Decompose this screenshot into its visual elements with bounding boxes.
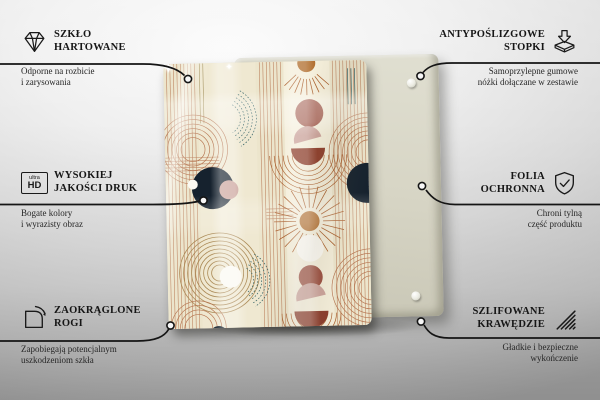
callout-description: Bogate kolory i wyrazisty obraz xyxy=(21,208,83,230)
callout-title: SZLIFOWANE KRAWĘDZIE xyxy=(472,306,545,331)
callout-tempered-glass: SZKŁO HARTOWANE xyxy=(21,28,126,55)
ultra-hd-icon: ultra HD xyxy=(21,172,48,194)
callout-polished-edges: SZLIFOWANE KRAWĘDZIE xyxy=(472,305,578,332)
callout-description: Gładkie i bezpieczne wykończenie xyxy=(503,342,578,364)
hatched-edge-icon xyxy=(551,305,578,332)
sparkle-icon: ✦ xyxy=(225,63,233,73)
rubber-foot-icon xyxy=(407,78,416,87)
callout-description: Odporne na rozbicie i zarysowania xyxy=(21,66,94,88)
callout-title: ANTYPOŚLIZGOWE STOPKI xyxy=(439,29,545,54)
shield-check-icon xyxy=(551,170,578,197)
callout-title: WYSOKIEJ JAKOŚCI DRUK xyxy=(54,170,137,195)
rounded-corner-icon xyxy=(21,304,48,331)
callout-rounded-corners: ZAOKRĄGLONE ROGI xyxy=(21,304,141,331)
ultra-hd-icon-label: HD xyxy=(28,181,42,191)
sparkle-icon: ✦ xyxy=(163,60,175,77)
callout-print-quality: ultra HD WYSOKIEJ JAKOŚCI DRUK xyxy=(21,170,137,195)
callout-title: SZKŁO HARTOWANE xyxy=(54,29,126,54)
callout-title: ZAOKRĄGLONE ROGI xyxy=(54,305,141,330)
callout-description: Chroni tylną część produktu xyxy=(528,208,582,230)
callout-protective-film: FOLIA OCHRONNA xyxy=(481,170,578,197)
callout-anti-slip-feet: ANTYPOŚLIZGOWE STOPKI xyxy=(439,28,578,55)
product-infographic: { "canvas": {"width": 600, "height": 400… xyxy=(0,0,600,400)
glass-panel: ✦ ✦ xyxy=(163,60,372,329)
callout-description: Zapobiegają potencjalnym uszkodzeniom sz… xyxy=(21,344,117,366)
abstract-boho-pattern xyxy=(163,60,372,329)
rubber-foot-icon xyxy=(411,291,420,300)
callout-description: Samoprzylepne gumowe nóżki dołączane w z… xyxy=(478,66,578,88)
callout-title: FOLIA OCHRONNA xyxy=(481,171,545,196)
feet-in-box-icon xyxy=(551,28,578,55)
diamond-icon xyxy=(21,28,48,55)
